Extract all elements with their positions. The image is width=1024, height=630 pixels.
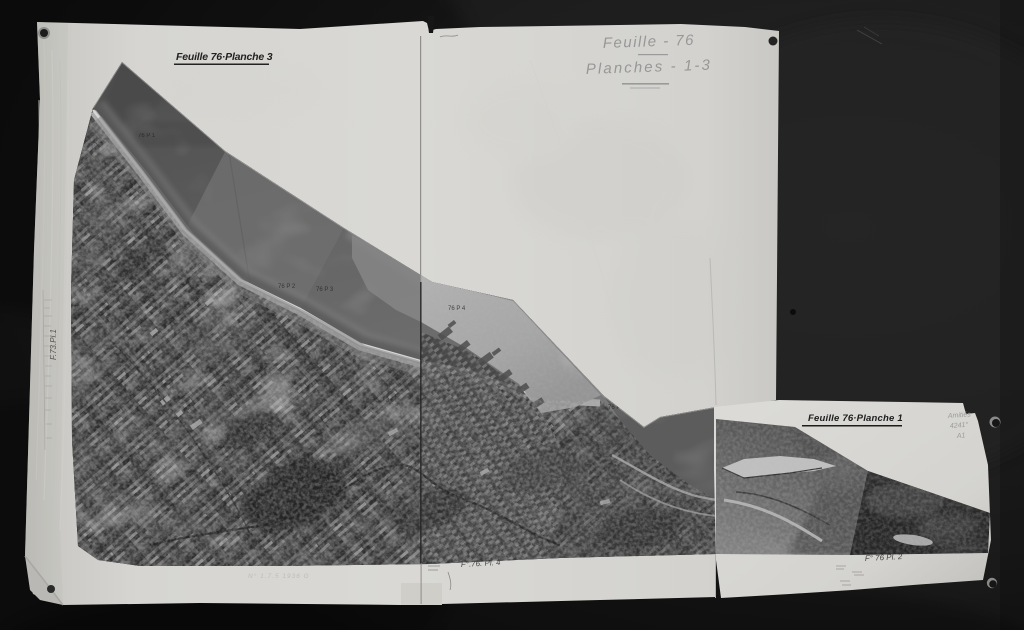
svg-text:Feuille 76·Planche 1: Feuille 76·Planche 1: [808, 413, 903, 424]
svg-text:N° 1.7.5 1936 G: N° 1.7.5 1936 G: [248, 572, 310, 580]
svg-text:4241°: 4241°: [950, 421, 969, 430]
svg-text:A1: A1: [956, 432, 966, 440]
svg-text:F.73.Pl.1: F.73.Pl.1: [49, 329, 58, 360]
svg-text:76 P 1: 76 P 1: [138, 133, 156, 139]
svg-text:Feuille 76·Planche 3: Feuille 76·Planche 3: [176, 51, 273, 63]
svg-text:76 P 2: 76 P 2: [278, 284, 296, 290]
svg-text:76 P 4: 76 P 4: [448, 306, 466, 312]
svg-text:76 P 3: 76 P 3: [316, 287, 334, 293]
svg-text:Feuille - 76: Feuille - 76: [603, 32, 696, 52]
